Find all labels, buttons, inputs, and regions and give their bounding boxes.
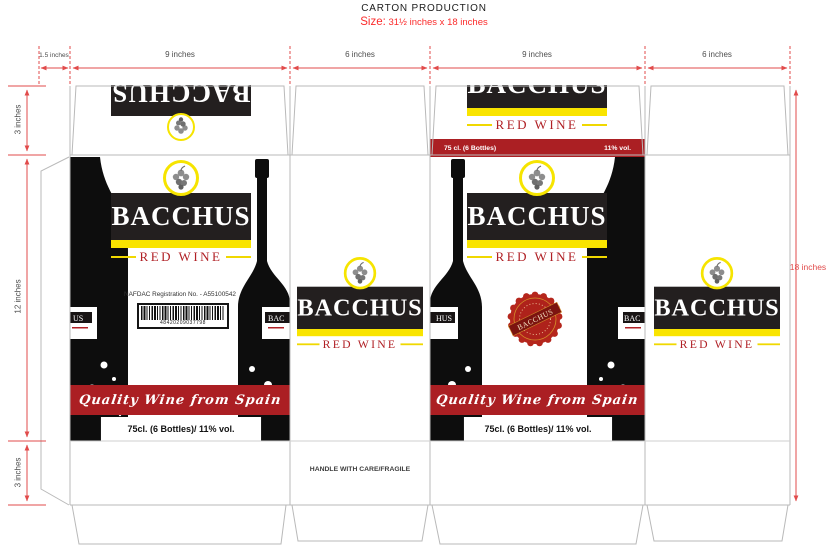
dieline-linework [0,0,828,560]
carton-production-sheet: CARTON PRODUCTION Size: 31½ inches x 18 … [0,0,828,560]
dimension-lines [8,46,796,505]
grape-emblem-icon [519,160,555,196]
carton-outline [41,86,790,544]
grape-emblem-icon [163,160,199,196]
